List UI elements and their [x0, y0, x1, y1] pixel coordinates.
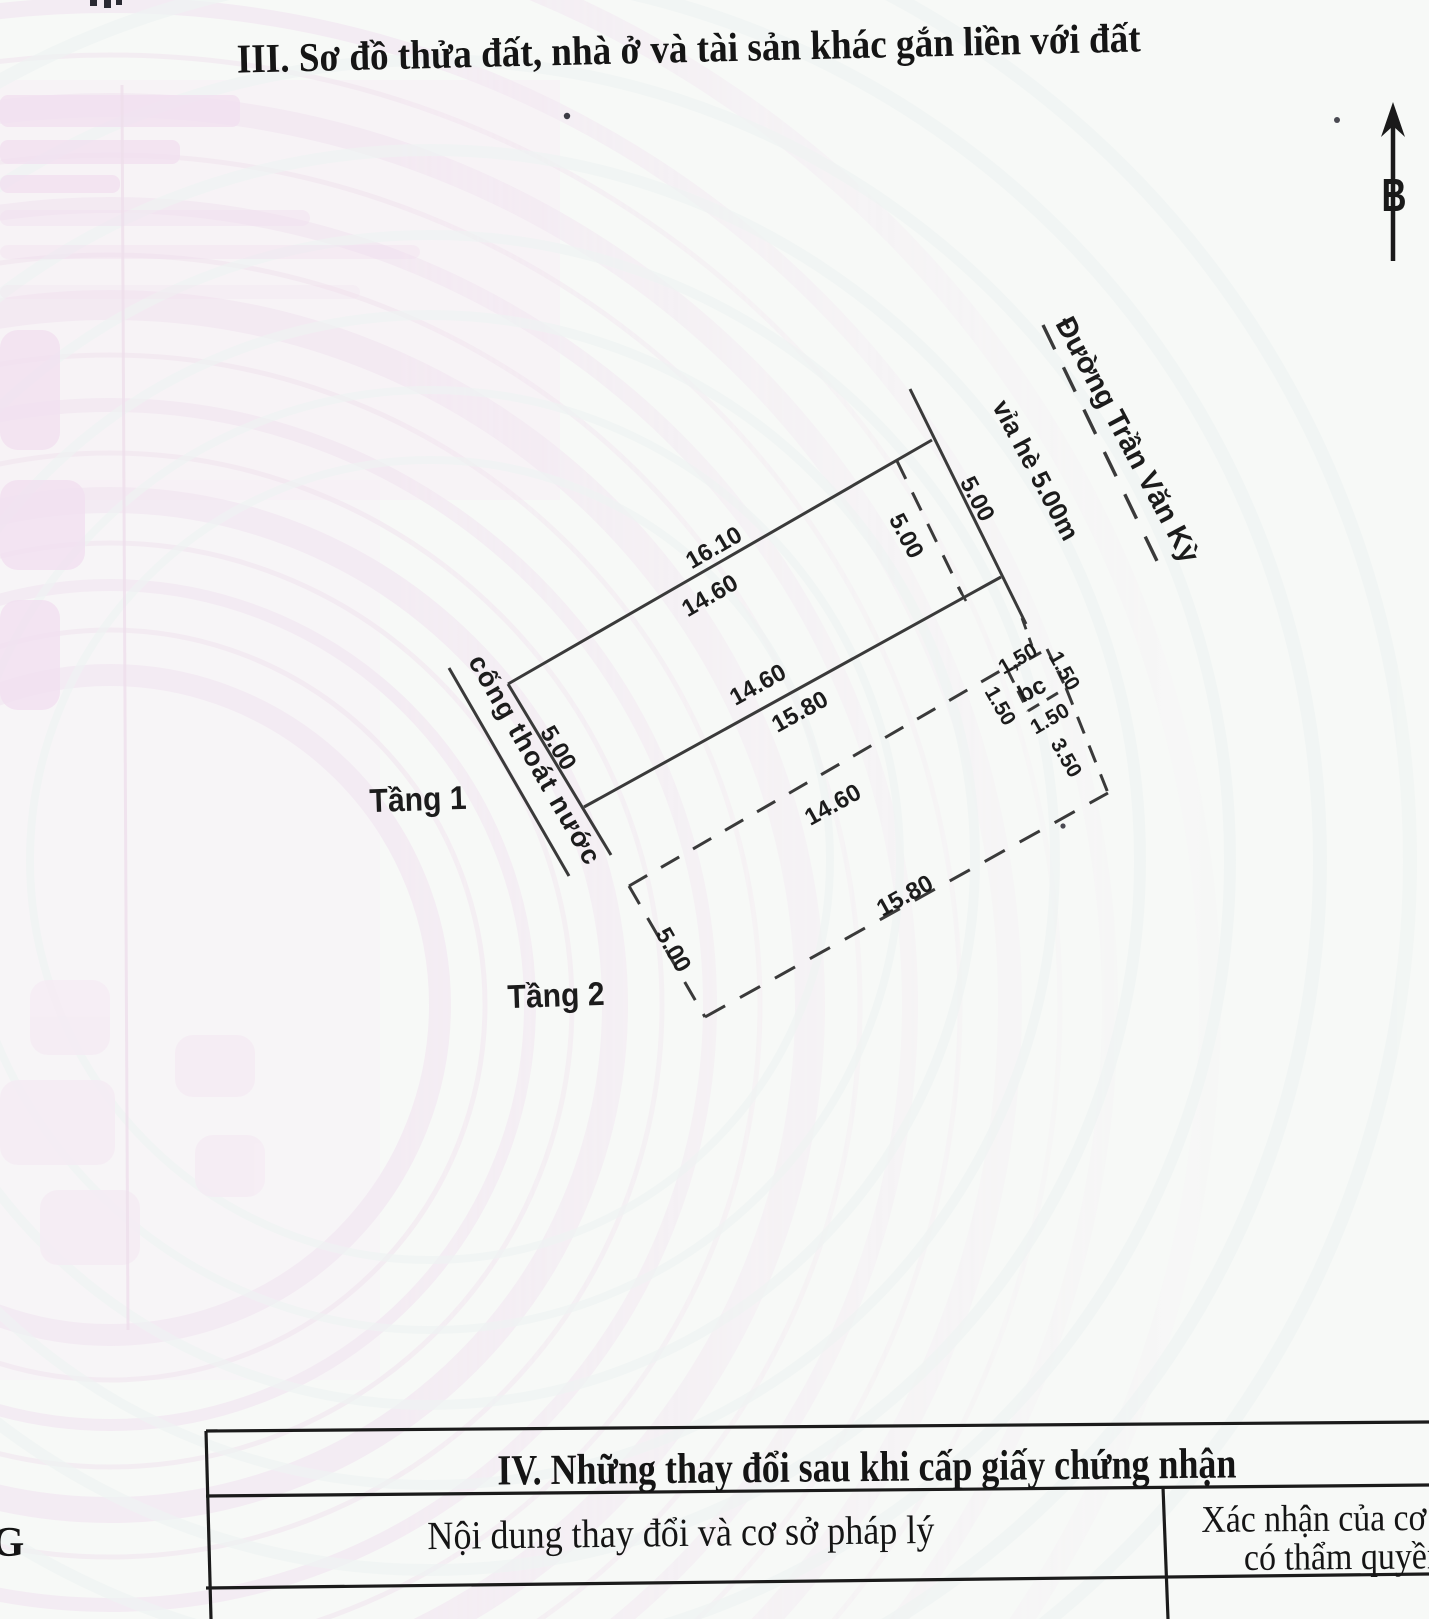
svg-text:Nội dung thay đổi và cơ sở phá: Nội dung thay đổi và cơ sở pháp lý	[427, 1507, 935, 1558]
svg-text:có thẩm quyền: có thẩm quyền	[1244, 1535, 1429, 1579]
svg-text:IV. Những thay đổi sau khi cấp: IV. Những thay đổi sau khi cấp giấy chứn…	[497, 1440, 1236, 1494]
svg-text:Tầng 2: Tầng 2	[507, 975, 605, 1015]
svg-text:Xác nhận của cơ: Xác nhận của cơ	[1201, 1497, 1427, 1541]
svg-text:G: G	[0, 1520, 24, 1566]
svg-text:Tầng 1: Tầng 1	[369, 779, 467, 819]
